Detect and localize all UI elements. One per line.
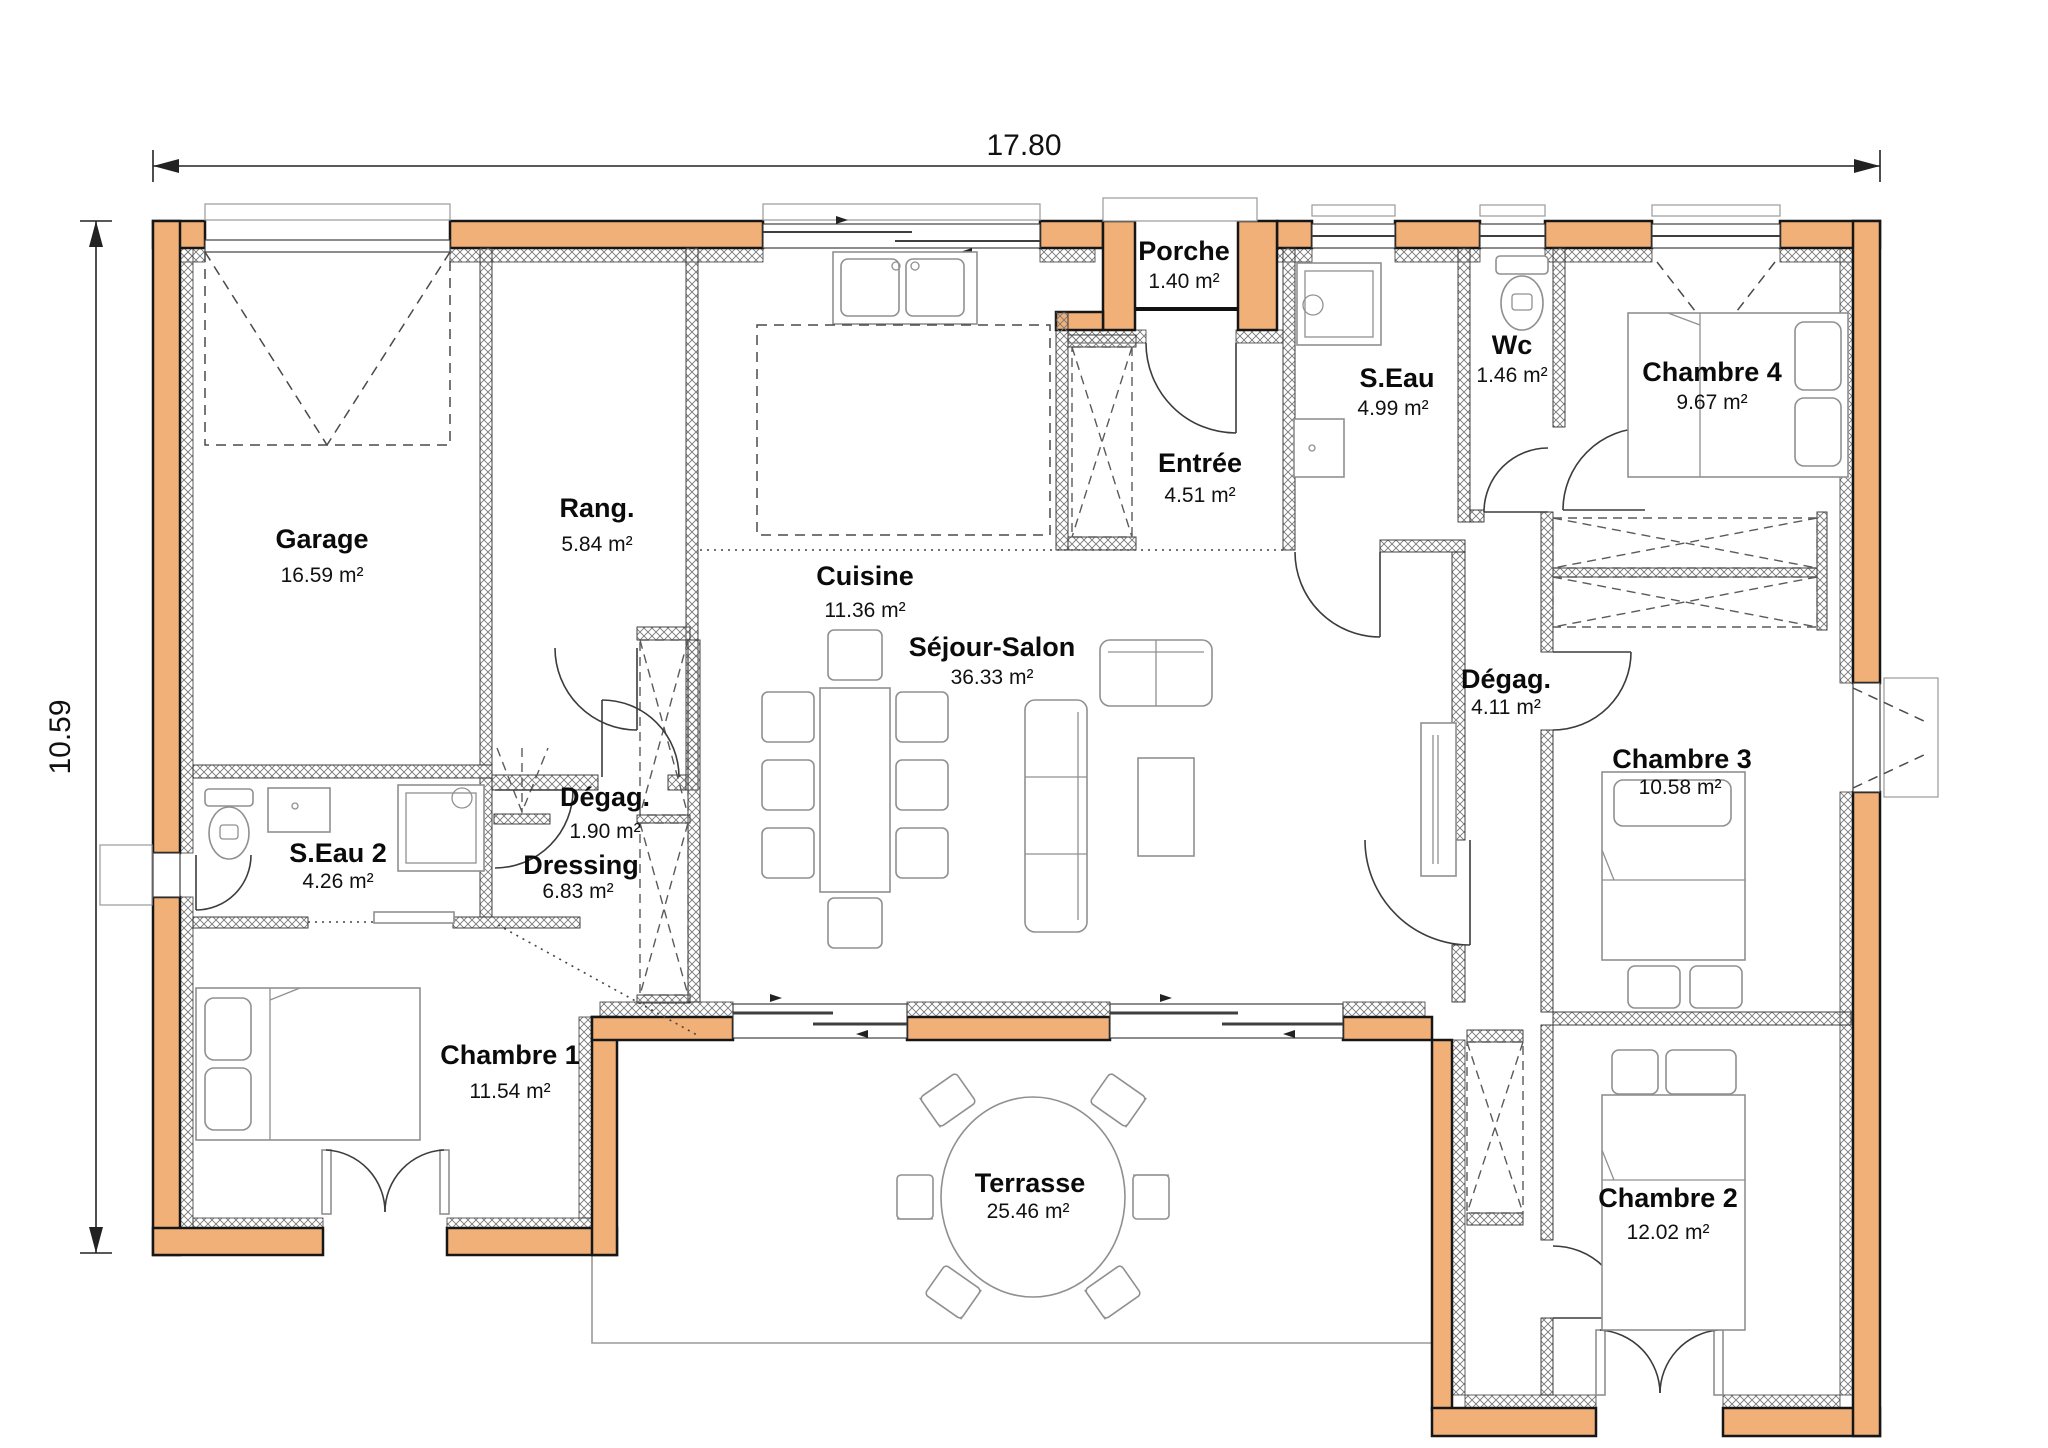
cabinet-icon: [1421, 723, 1456, 876]
shower-icon: [398, 785, 484, 871]
dimension-top: 17.80: [153, 129, 1880, 182]
room-label-seau: S.Eau: [1359, 363, 1434, 393]
floor-plan: 17.80 10.59 Garage 16.59 m² Rang. 5.84 m…: [0, 0, 2048, 1448]
floor-plan-page: 17.80 10.59 Garage 16.59 m² Rang. 5.84 m…: [0, 0, 2048, 1448]
room-area-dressing: 6.83 m²: [542, 880, 613, 903]
room-label-cuisine: Cuisine: [816, 561, 914, 591]
room-area-entree: 4.51 m²: [1164, 484, 1235, 507]
door-swing-icon: [1146, 343, 1236, 433]
french-door-icon: [322, 1150, 449, 1214]
room-area-degag2: 4.11 m²: [1471, 696, 1541, 719]
room-area-seau: 4.99 m²: [1357, 397, 1428, 420]
room-label-seau2: S.Eau 2: [289, 838, 387, 868]
room-area-wc: 1.46 m²: [1476, 364, 1547, 387]
dimension-left: 10.59: [44, 221, 112, 1253]
kitchen-counter-icon: [757, 325, 1050, 535]
room-label-terrasse: Terrasse: [975, 1168, 1086, 1198]
room-label-porche: Porche: [1138, 236, 1230, 266]
door-swing-icon: [555, 648, 637, 730]
room-area-porche: 1.40 m²: [1148, 270, 1219, 293]
room-area-seau2: 4.26 m²: [302, 870, 373, 893]
room-area-terrasse: 25.46 m²: [987, 1200, 1070, 1223]
room-area-chambre3: 10.58 m²: [1639, 776, 1722, 799]
door-swing-icon: [1553, 652, 1631, 730]
room-area-chambre1: 11.54 m²: [469, 1080, 550, 1103]
room-area-chambre4: 9.67 m²: [1676, 391, 1747, 414]
room-label-wc: Wc: [1492, 330, 1533, 360]
room-area-cuisine: 11.36 m²: [824, 599, 905, 622]
room-label-rang: Rang.: [559, 493, 634, 523]
wardrobe-icon: [1553, 518, 1817, 568]
room-area-rang: 5.84 m²: [561, 533, 632, 556]
bed-icon: [1602, 772, 1745, 1008]
washbasin-icon: [1294, 419, 1344, 477]
dimension-height-label: 10.59: [44, 699, 77, 774]
room-label-degag1: Dégag.: [560, 782, 650, 812]
bed-icon: [196, 988, 420, 1140]
room-label-chambre2: Chambre 2: [1598, 1183, 1738, 1213]
toilet-icon: [1496, 256, 1548, 330]
shower-icon: [1297, 263, 1381, 345]
room-label-entree: Entrée: [1158, 448, 1242, 478]
window-icon: [1312, 224, 1395, 248]
dining-table-icon: [762, 630, 948, 948]
room-label-sejour: Séjour-Salon: [909, 632, 1076, 662]
toilet-icon: [205, 789, 253, 859]
loveseat-icon: [1100, 640, 1212, 706]
wardrobe-icon: [1467, 1042, 1523, 1213]
porch-landing: [1103, 198, 1257, 221]
room-label-chambre1: Chambre 1: [440, 1040, 580, 1070]
room-label-dressing: Dressing: [523, 850, 639, 880]
wardrobe-icon: [1072, 347, 1132, 537]
door-swing-icon: [1295, 552, 1380, 637]
room-label-garage: Garage: [275, 524, 368, 554]
sofa-icon: [1025, 700, 1087, 932]
room-label-chambre3: Chambre 3: [1612, 744, 1752, 774]
garage-door-icon: [205, 240, 450, 445]
wardrobe-icon: [1553, 577, 1817, 627]
room-area-garage: 16.59 m²: [281, 564, 364, 587]
window-icon: [763, 216, 1040, 256]
wardrobe-icon: [640, 823, 688, 995]
french-door-icon: [1596, 1330, 1723, 1395]
sliding-bay-icon: [1110, 994, 1343, 1038]
sliding-door-icon: [374, 912, 454, 923]
coffee-table-icon: [1138, 758, 1194, 856]
sliding-bay-icon: [733, 994, 907, 1038]
room-label-chambre4: Chambre 4: [1642, 357, 1782, 387]
dimension-width-label: 17.80: [986, 129, 1061, 162]
room-area-chambre2: 12.02 m²: [1627, 1221, 1710, 1244]
room-area-sejour: 36.33 m²: [951, 666, 1034, 689]
door-swing-icon: [1484, 448, 1548, 512]
door-swing-icon: [196, 855, 251, 910]
room-label-degag2: Dégag.: [1461, 664, 1551, 694]
window-icon: [1480, 224, 1545, 248]
room-area-degag1: 1.90 m²: [569, 820, 640, 843]
washbasin-icon: [268, 788, 330, 832]
kitchen-sink-icon: [833, 252, 977, 324]
